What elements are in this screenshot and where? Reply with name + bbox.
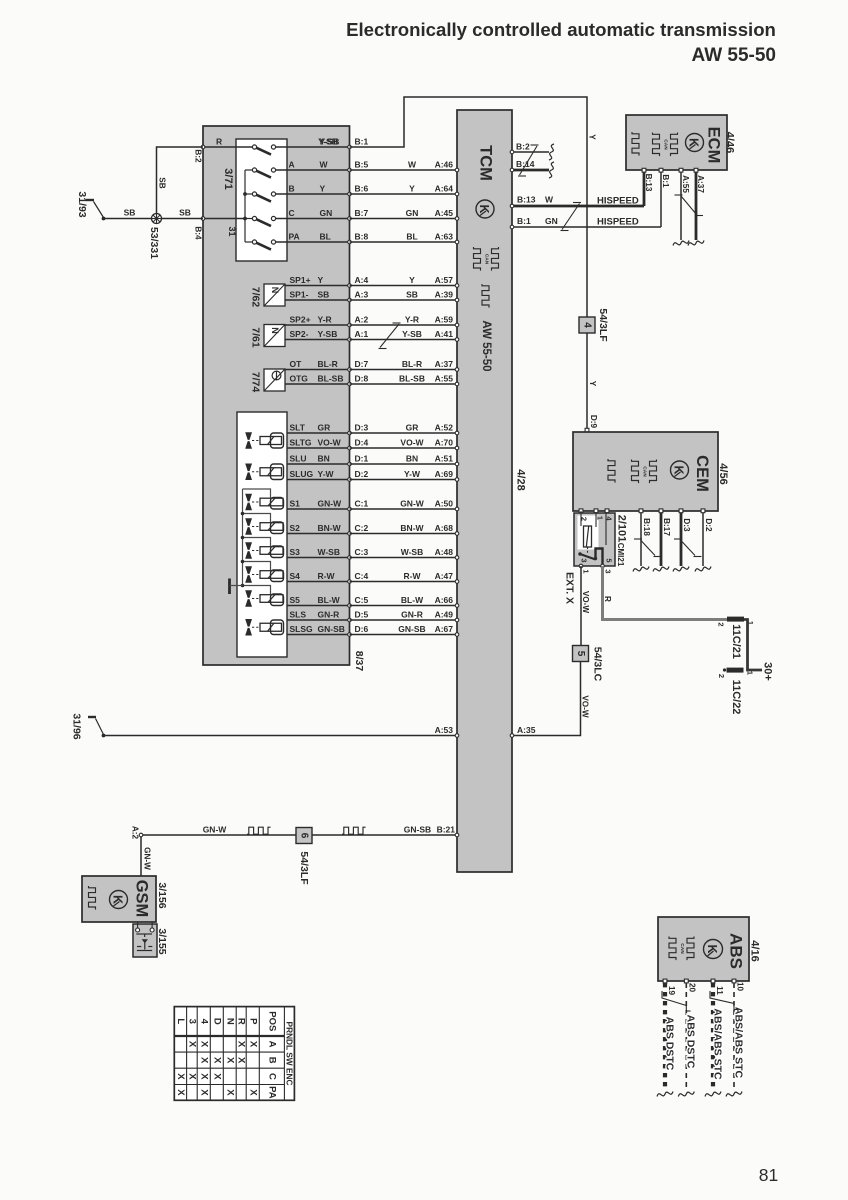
svg-text:VO-W: VO-W — [400, 438, 424, 448]
svg-text:BL-SB: BL-SB — [399, 374, 425, 384]
svg-text:54/3LC: 54/3LC — [592, 647, 604, 682]
svg-text:D:8: D:8 — [355, 374, 369, 384]
svg-text:A:41: A:41 — [435, 329, 454, 339]
svg-text:A:48: A:48 — [435, 547, 454, 557]
svg-text:SP2-: SP2- — [290, 329, 309, 339]
svg-text:Y: Y — [320, 184, 326, 194]
svg-text:BL-W: BL-W — [401, 595, 424, 605]
svg-text:GN: GN — [545, 216, 558, 226]
svg-text:1: 1 — [582, 569, 591, 573]
svg-text:31/93: 31/93 — [76, 191, 88, 217]
svg-text:11C/22: 11C/22 — [730, 680, 742, 715]
svg-text:Y-SB: Y-SB — [318, 329, 338, 339]
svg-text:B:1: B:1 — [517, 216, 531, 226]
svg-text:X: X — [224, 1089, 235, 1096]
svg-text:A:37: A:37 — [435, 359, 454, 369]
svg-text:A:67: A:67 — [435, 624, 454, 634]
svg-text:Y: Y — [588, 381, 597, 387]
svg-text:10: 10 — [736, 982, 745, 992]
svg-text:A:47: A:47 — [435, 571, 454, 581]
svg-text:A:68: A:68 — [435, 523, 454, 533]
svg-text:W: W — [545, 195, 554, 205]
svg-text:4: 4 — [198, 1019, 209, 1025]
svg-text:6: 6 — [298, 833, 309, 839]
svg-text:B:14: B:14 — [516, 159, 535, 169]
svg-text:B:8: B:8 — [355, 232, 369, 242]
svg-text:X: X — [186, 1041, 197, 1048]
svg-text:4/46: 4/46 — [724, 132, 736, 153]
svg-text:B: B — [289, 184, 295, 194]
svg-text:4/16: 4/16 — [749, 940, 761, 961]
svg-text:2: 2 — [580, 517, 589, 521]
svg-text:TCM: TCM — [477, 145, 495, 181]
svg-text:7/61: 7/61 — [250, 327, 262, 348]
svg-text:A:55: A:55 — [681, 175, 690, 193]
svg-text:B:17: B:17 — [662, 518, 671, 536]
svg-text:54/3LF: 54/3LF — [298, 851, 310, 885]
svg-text:S3: S3 — [290, 547, 301, 557]
svg-text:GR: GR — [318, 423, 331, 433]
svg-text:A:39: A:39 — [435, 290, 454, 300]
svg-text:SLTG: SLTG — [290, 438, 312, 448]
svg-text:R: R — [603, 596, 612, 602]
svg-text:B:18: B:18 — [642, 518, 651, 536]
svg-text:SLU: SLU — [290, 454, 307, 464]
svg-text:N: N — [270, 287, 280, 294]
svg-text:GN-SB: GN-SB — [404, 825, 431, 835]
svg-text:SLS: SLS — [290, 610, 307, 620]
svg-text:A:52: A:52 — [435, 423, 454, 433]
svg-text:C: C — [289, 208, 295, 218]
svg-text:BN-W: BN-W — [318, 523, 342, 533]
svg-text:1: 1 — [746, 671, 755, 675]
svg-text:W-SB: W-SB — [318, 547, 341, 557]
svg-text:SB: SB — [157, 177, 166, 188]
svg-text:SB: SB — [179, 208, 191, 218]
svg-text:GN-R: GN-R — [401, 610, 423, 620]
svg-text:X: X — [186, 1073, 197, 1080]
svg-text:ABS DSTC: ABS DSTC — [685, 1015, 697, 1069]
svg-text:81: 81 — [759, 1165, 778, 1185]
svg-text:B:1: B:1 — [355, 137, 369, 147]
svg-text:ABS/ABS STC: ABS/ABS STC — [733, 1007, 745, 1079]
svg-text:Y-R: Y-R — [405, 315, 419, 325]
svg-text:B:2: B:2 — [516, 142, 530, 152]
svg-text:X: X — [247, 1041, 258, 1048]
svg-text:P: P — [247, 1018, 258, 1025]
svg-text:Y-W: Y-W — [404, 469, 421, 479]
svg-text:B:13: B:13 — [517, 195, 536, 205]
svg-text:D:1: D:1 — [355, 454, 369, 464]
svg-text:A:51: A:51 — [435, 454, 454, 464]
svg-text:W-SB: W-SB — [401, 547, 424, 557]
svg-text:A:57: A:57 — [435, 275, 454, 285]
svg-text:C: C — [266, 1073, 277, 1080]
svg-text:A: A — [266, 1041, 277, 1048]
svg-text:4: 4 — [581, 322, 592, 328]
svg-text:A:49: A:49 — [435, 610, 454, 620]
svg-text:VO-W: VO-W — [581, 695, 590, 718]
svg-text:Y: Y — [409, 184, 415, 194]
svg-text:2: 2 — [717, 674, 726, 678]
svg-text:Y: Y — [318, 275, 324, 285]
svg-text:D:2: D:2 — [355, 469, 369, 479]
svg-text:CAN: CAN — [663, 139, 669, 150]
svg-text:A: A — [289, 160, 295, 170]
svg-text:BL-R: BL-R — [402, 359, 422, 369]
svg-text:PRNDL SW ENC: PRNDL SW ENC — [284, 1022, 294, 1086]
svg-text:30+: 30+ — [762, 662, 774, 681]
svg-text:GN: GN — [406, 208, 419, 218]
svg-text:B:7: B:7 — [355, 208, 369, 218]
svg-text:BN: BN — [406, 454, 418, 464]
svg-text:SB: SB — [318, 290, 330, 300]
svg-text:CEM: CEM — [693, 455, 711, 492]
svg-text:BL-W: BL-W — [318, 595, 341, 605]
svg-text:C:1: C:1 — [355, 499, 369, 509]
svg-text:B:21: B:21 — [437, 825, 456, 835]
svg-text:A:59: A:59 — [435, 315, 454, 325]
svg-text:B:5: B:5 — [355, 160, 369, 170]
svg-text:SLUG: SLUG — [290, 469, 314, 479]
svg-text:A:50: A:50 — [435, 499, 454, 509]
svg-text:GN-W: GN-W — [400, 499, 425, 509]
svg-text:C:5: C:5 — [355, 595, 369, 605]
svg-text:A:46: A:46 — [435, 160, 454, 170]
svg-text:11: 11 — [715, 986, 724, 995]
svg-text:31/96: 31/96 — [71, 713, 83, 739]
svg-text:GN-W: GN-W — [318, 499, 343, 509]
svg-text:GN-W: GN-W — [203, 825, 228, 835]
svg-text:W: W — [408, 160, 417, 170]
svg-text:CMI21: CMI21 — [616, 543, 625, 567]
svg-text:CAN: CAN — [679, 943, 685, 954]
svg-text:3: 3 — [580, 558, 589, 562]
svg-text:5: 5 — [575, 651, 586, 657]
svg-text:B:2: B:2 — [193, 149, 202, 163]
svg-text:5: 5 — [605, 558, 614, 562]
svg-text:2/101: 2/101 — [616, 515, 628, 543]
svg-text:A:70: A:70 — [435, 438, 454, 448]
svg-text:3/155: 3/155 — [156, 928, 168, 954]
svg-text:BN-W: BN-W — [400, 523, 424, 533]
svg-text:19: 19 — [667, 986, 676, 996]
svg-text:20: 20 — [688, 983, 697, 993]
svg-text:PA: PA — [266, 1086, 277, 1099]
svg-text:R: R — [216, 137, 222, 147]
svg-text:B:6: B:6 — [355, 184, 369, 194]
svg-text:Electronically controlled auto: Electronically controlled automatic tran… — [346, 19, 776, 40]
svg-text:3/71: 3/71 — [222, 168, 234, 189]
svg-text:4/28: 4/28 — [515, 469, 527, 490]
svg-text:2: 2 — [717, 622, 726, 626]
svg-text:3: 3 — [186, 1019, 197, 1024]
svg-text:A:64: A:64 — [435, 184, 454, 194]
svg-text:GN: GN — [320, 208, 333, 218]
svg-text:BL: BL — [320, 232, 331, 242]
svg-text:GN-SB: GN-SB — [398, 624, 425, 634]
svg-text:D:3: D:3 — [682, 518, 691, 532]
svg-text:GN-W: GN-W — [142, 847, 151, 870]
svg-text:CAN: CAN — [642, 466, 648, 477]
svg-text:POS: POS — [266, 1011, 277, 1031]
svg-text:SLSG: SLSG — [290, 624, 314, 634]
svg-text:A:2: A:2 — [131, 826, 140, 840]
svg-text:X: X — [198, 1073, 209, 1080]
svg-text:BL: BL — [406, 232, 417, 242]
svg-text:BL-R: BL-R — [318, 359, 338, 369]
svg-text:GN-SB: GN-SB — [318, 624, 345, 634]
svg-text:GSM: GSM — [133, 880, 151, 918]
svg-text:SLT: SLT — [290, 423, 306, 433]
svg-text:A:69: A:69 — [435, 469, 454, 479]
svg-text:X: X — [198, 1041, 209, 1048]
svg-text:54/3LF: 54/3LF — [597, 308, 609, 342]
svg-text:SP1+: SP1+ — [290, 275, 311, 285]
svg-text:X: X — [175, 1073, 186, 1080]
svg-text:GR: GR — [406, 423, 419, 433]
svg-text:X: X — [247, 1089, 258, 1096]
svg-text:31: 31 — [227, 226, 237, 236]
svg-text:EXT. X: EXT. X — [564, 572, 576, 604]
svg-text:A:66: A:66 — [435, 595, 454, 605]
svg-text:HISPEED: HISPEED — [597, 196, 639, 207]
svg-text:C:4: C:4 — [355, 571, 369, 581]
svg-text:AW 55-50: AW 55-50 — [692, 45, 776, 66]
svg-text:A:2: A:2 — [355, 315, 369, 325]
svg-text:7/62: 7/62 — [250, 287, 262, 308]
svg-text:ABS/ABS STC: ABS/ABS STC — [712, 1008, 724, 1080]
svg-text:S4: S4 — [290, 571, 301, 581]
svg-text:A:53: A:53 — [435, 725, 454, 735]
svg-text:B:4: B:4 — [193, 226, 202, 240]
svg-text:D: D — [211, 1018, 222, 1025]
svg-text:B:1: B:1 — [661, 174, 670, 188]
svg-text:ECM: ECM — [705, 127, 723, 164]
svg-text:SP2+: SP2+ — [290, 315, 311, 325]
svg-text:N: N — [270, 327, 280, 334]
svg-text:HISPEED: HISPEED — [597, 217, 639, 228]
svg-text:PA: PA — [289, 232, 300, 242]
svg-text:X: X — [175, 1089, 186, 1096]
svg-text:A:63: A:63 — [435, 232, 454, 242]
svg-text:D:7: D:7 — [355, 359, 369, 369]
svg-text:X: X — [224, 1057, 235, 1064]
svg-text:Y-R: Y-R — [318, 315, 332, 325]
svg-text:ABS: ABS — [727, 933, 746, 969]
svg-text:BN: BN — [318, 454, 330, 464]
svg-text:CAN: CAN — [484, 254, 490, 265]
svg-text:OTG: OTG — [290, 374, 309, 384]
svg-text:SB: SB — [406, 290, 418, 300]
svg-text:X: X — [236, 1041, 247, 1048]
svg-text:A:3: A:3 — [355, 290, 369, 300]
svg-text:11C/21: 11C/21 — [730, 624, 742, 659]
svg-text:Y-SB: Y-SB — [318, 137, 338, 147]
svg-text:N: N — [224, 1018, 235, 1025]
svg-text:C:3: C:3 — [355, 547, 369, 557]
svg-text:B:13: B:13 — [644, 174, 653, 192]
svg-text:D:9: D:9 — [589, 415, 598, 429]
svg-text:S5: S5 — [290, 595, 301, 605]
svg-text:C:2: C:2 — [355, 523, 369, 533]
svg-text:OT: OT — [290, 359, 303, 369]
svg-text:ABS DSTC: ABS DSTC — [664, 1017, 676, 1071]
svg-text:W: W — [320, 160, 329, 170]
svg-text:Y: Y — [409, 275, 415, 285]
svg-text:7/74: 7/74 — [250, 372, 262, 393]
svg-text:R-W: R-W — [318, 571, 336, 581]
svg-text:VO-W: VO-W — [318, 438, 342, 448]
svg-text:SP1-: SP1- — [290, 290, 309, 300]
svg-text:VO-W: VO-W — [581, 591, 590, 614]
svg-text:SB: SB — [124, 208, 136, 218]
svg-text:X: X — [211, 1073, 222, 1080]
svg-text:3: 3 — [604, 569, 613, 573]
svg-text:X: X — [198, 1089, 209, 1096]
svg-text:D:4: D:4 — [355, 438, 369, 448]
svg-text:Y: Y — [588, 134, 597, 140]
svg-text:A:35: A:35 — [517, 725, 536, 735]
svg-text:AW 55-50: AW 55-50 — [480, 320, 492, 371]
svg-text:A:55: A:55 — [435, 374, 454, 384]
svg-text:Y-W: Y-W — [318, 469, 335, 479]
svg-text:BL-SB: BL-SB — [318, 374, 344, 384]
svg-text:S1: S1 — [290, 499, 301, 509]
svg-text:GN-R: GN-R — [318, 610, 340, 620]
svg-text:8/37: 8/37 — [353, 651, 365, 672]
svg-text:1: 1 — [596, 516, 605, 520]
svg-text:D:6: D:6 — [355, 624, 369, 634]
svg-text:4/56: 4/56 — [717, 463, 729, 484]
svg-text:Y-SB: Y-SB — [402, 329, 422, 339]
svg-text:R: R — [236, 1018, 247, 1025]
svg-text:3/156: 3/156 — [156, 882, 168, 908]
svg-text:X: X — [211, 1057, 222, 1064]
svg-text:A:45: A:45 — [435, 208, 454, 218]
svg-text:X: X — [236, 1057, 247, 1064]
svg-text:A:1: A:1 — [355, 329, 369, 339]
svg-text:D:5: D:5 — [355, 610, 369, 620]
svg-text:B: B — [266, 1057, 277, 1064]
svg-text:L: L — [175, 1018, 186, 1024]
svg-text:A:4: A:4 — [355, 275, 369, 285]
svg-text:R-W: R-W — [404, 571, 422, 581]
svg-text:D:3: D:3 — [355, 423, 369, 433]
svg-text:S2: S2 — [290, 523, 301, 533]
svg-text:X: X — [198, 1057, 209, 1064]
svg-text:D:2: D:2 — [704, 518, 713, 532]
svg-text:53/331: 53/331 — [148, 227, 160, 259]
